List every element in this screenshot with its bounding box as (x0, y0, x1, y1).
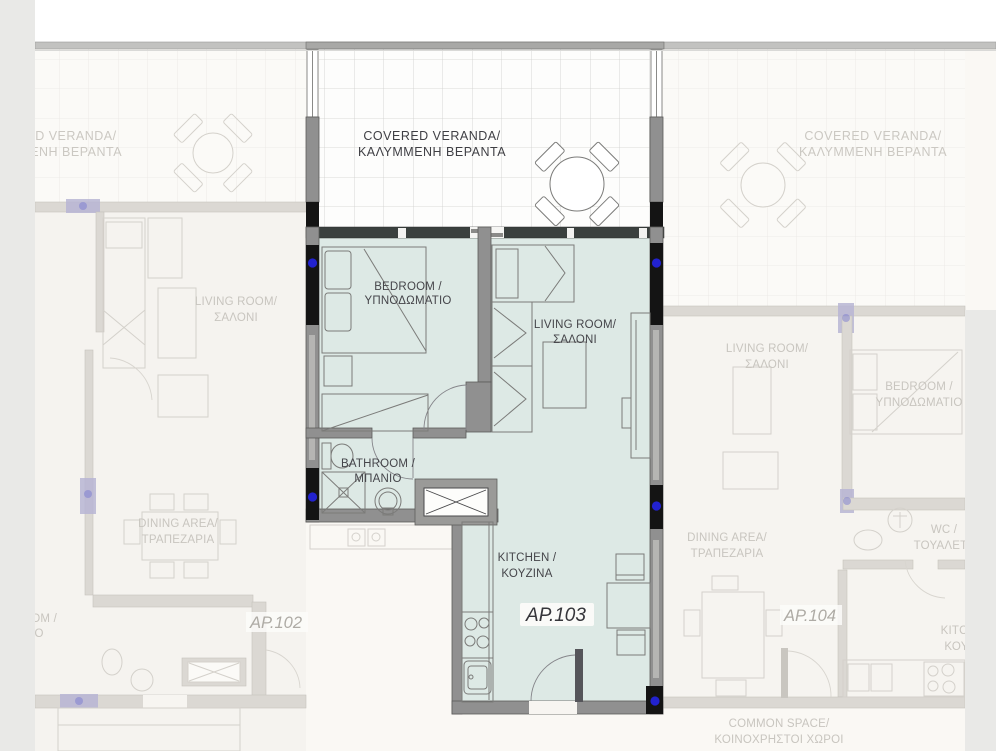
ap102-unit-number: AP.102 (249, 614, 302, 632)
viewpoint-marker-faded[interactable] (842, 314, 850, 322)
ap104-unit-number: AP.104 (783, 607, 836, 625)
ap104-bedroom-label-en: BEDROOM / (885, 381, 953, 393)
viewpoint-marker-faded[interactable] (843, 497, 851, 505)
viewpoint-marker[interactable] (308, 258, 317, 267)
ap104-veranda-table (741, 163, 785, 207)
ap104-living-label-en: LIVING ROOM/ (726, 343, 809, 355)
ap104-veranda-tiles (663, 49, 965, 306)
ap104-veranda-label-en: COVERED VERANDA/ (804, 129, 941, 143)
ap104-dining-label-en: DINING AREA/ (687, 532, 767, 544)
ap104-wc-label-en: WC / (931, 524, 958, 536)
ap103-living-label-gr: ΣΑΛΟΝΙ (553, 334, 597, 346)
ap103-veranda-label-gr: ΚΑΛΥΜΜΕΝΗ ΒΕΡΑΝΤΑ (358, 145, 506, 159)
ap104-bedroom-label-gr: ΥΠΝΟΔΩΜΑΤΙΟ (875, 397, 962, 409)
ap102-living-label-en: LIVING ROOM/ (195, 296, 278, 308)
floor-plan-svg: COVERED VERANDA/ ΚΑΛΥΜΜΕΝΗ ΒΕΡΑΝΤΑ LIVIN… (0, 0, 996, 751)
ap103-veranda-table (550, 157, 604, 211)
ap103-bedroom-living-wall (478, 227, 491, 382)
ap103-veranda-label-en: COVERED VERANDA/ (363, 129, 500, 143)
veranda-railing (35, 42, 996, 51)
ap104-living-label-gr: ΣΑΛΟΝΙ (745, 359, 789, 371)
ap104-veranda-label-gr: ΚΑΛΥΜΜΕΝΗ ΒΕΡΑΝΤΑ (799, 145, 947, 159)
ap103-living-label-en: LIVING ROOM/ (534, 319, 617, 331)
ap103-kitchen-label-en: KITCHEN / (498, 552, 557, 564)
ap103-bathroom-label-en: BATHROOM / (341, 458, 416, 470)
ap102-living-label-gr: ΣΑΛΟΝΙ (214, 312, 258, 324)
viewpoint-marker[interactable] (652, 258, 661, 267)
ap104-dining-label-gr: ΤΡΑΠΕΖΑΡΙΑ (691, 548, 764, 560)
common-space-label-gr: ΚΟΙΝΟΧΡΗΣΤΟΙ ΧΩΡΟΙ (714, 734, 843, 746)
viewpoint-marker-faded[interactable] (75, 697, 83, 705)
ap103-bedroom-label-en: BEDROOM / (374, 281, 442, 293)
ap102-dining-label-gr: ΤΡΑΠΕΖΑΡΙΑ (142, 534, 215, 546)
viewpoint-marker[interactable] (652, 501, 661, 510)
ap103-window (306, 245, 319, 325)
right-margin-band (965, 310, 996, 751)
ap103-bedroom-label-gr: ΥΠΝΟΔΩΜΑΤΙΟ (364, 295, 451, 307)
ap103-kitchen-left-wall (452, 522, 462, 714)
ap103-window (650, 243, 663, 325)
floor-plan-canvas: COVERED VERANDA/ ΚΑΛΥΜΜΕΝΗ ΒΕΡΑΝΤΑ LIVIN… (0, 0, 996, 751)
common-space-label-en: COMMON SPACE/ (729, 718, 830, 730)
top-margin (0, 0, 996, 42)
viewpoint-marker-faded[interactable] (84, 490, 92, 498)
ap102-veranda-tiles (35, 49, 306, 202)
viewpoint-marker-faded[interactable] (79, 202, 87, 210)
ap103-unit-number: AP.103 (525, 605, 586, 626)
ap103-kitchen-label-gr: ΚΟΥΖΙΝΑ (501, 568, 552, 580)
ap103-bathroom-top-wall (306, 428, 372, 438)
left-margin-band (0, 0, 35, 751)
ap103-bathroom-label-gr: ΜΠΑΝΙΟ (354, 473, 401, 485)
apartment-104-faded: COVERED VERANDA/ ΚΑΛΥΜΜΕΝΗ ΒΕΡΑΝΤΑ LIVIN… (663, 49, 996, 746)
viewpoint-marker[interactable] (650, 696, 659, 705)
ap102-veranda-table (193, 133, 233, 173)
ap102-dining-label-en: DINING AREA/ (138, 518, 218, 530)
viewpoint-marker[interactable] (308, 492, 317, 501)
